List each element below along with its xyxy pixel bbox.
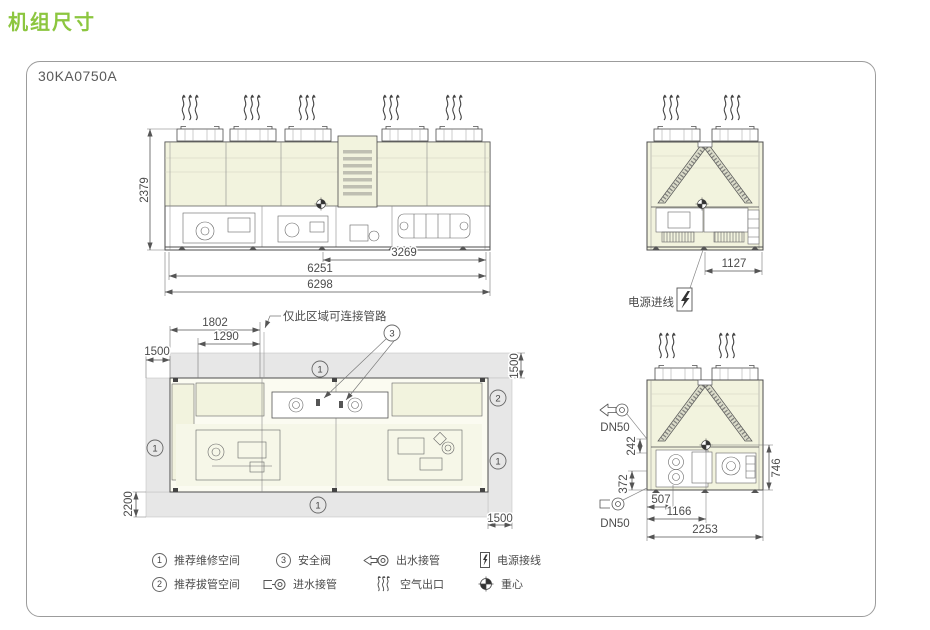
- marker-tube-right: 2: [495, 394, 500, 405]
- dim-746: 746: [771, 458, 783, 477]
- marker-service-bottom: 1: [315, 501, 320, 512]
- legend-item-gravity: 重心: [478, 576, 523, 592]
- air-outlet-icon: [377, 576, 393, 592]
- legend-item-power: 电源接线: [480, 552, 541, 568]
- air-outlet-arrows: [182, 95, 463, 120]
- legend-label-safety-valve: 安全阀: [298, 552, 331, 568]
- power-inlet-callout: 电源进线: [628, 250, 703, 311]
- marker-2-icon: 2: [152, 577, 167, 592]
- dim-1802: 1802: [202, 317, 228, 329]
- dim-clearance-bottom: 2200: [123, 491, 135, 517]
- marker-service-left: 1: [152, 444, 157, 455]
- legend-item-air-outlet: 空气出口: [377, 576, 444, 592]
- water-inlet-icon: [263, 577, 286, 592]
- legend-label-power: 电源接线: [497, 552, 541, 568]
- fan-decks: [177, 127, 482, 142]
- dim-partial-width: 3269: [391, 247, 417, 259]
- page: { "page": { "title": "机组尺寸", "model": "3…: [0, 0, 930, 630]
- dim-clearance-left: 1500: [144, 346, 170, 358]
- technical-drawing: 2379 3269 6251 6298 1127: [0, 0, 930, 630]
- legend-label-service-space: 推荐维修空间: [174, 552, 240, 568]
- dim-372: 372: [618, 474, 630, 493]
- dim-inner-width: 6251: [307, 263, 333, 275]
- legend-item-service-space: 1 推荐维修空间: [152, 552, 240, 568]
- end-view-bottom: DN50 DN50 242 372 746 507 1166 2253: [600, 333, 783, 541]
- front-elevation-view: 2379 3269 6251 6298: [139, 95, 490, 296]
- marker-3-icon: 3: [276, 553, 291, 568]
- legend-item-water-inlet: 进水接管: [263, 576, 337, 592]
- marker-1-icon: 1: [152, 553, 167, 568]
- end-top-dimension: 1127: [705, 252, 762, 275]
- center-louvre-tower: [338, 136, 377, 207]
- inlet-size-label: DN50: [600, 518, 629, 530]
- power-wiring-icon: [480, 552, 490, 568]
- dim-height: 2379: [139, 177, 151, 203]
- outlet-size-label: DN50: [600, 422, 629, 434]
- power-inlet-label: 电源进线: [628, 295, 674, 309]
- marker-service-top: 1: [317, 365, 322, 376]
- legend-item-safety-valve: 3 安全阀: [276, 552, 331, 568]
- dim-2253: 2253: [692, 524, 718, 536]
- callout-text: 仅此区域可连接管路: [283, 309, 387, 323]
- legend-item-water-outlet: 出水接管: [363, 552, 440, 568]
- plan-interior: [172, 378, 485, 492]
- dim-overall-width: 6298: [307, 279, 333, 291]
- water-inlet-icon: [600, 500, 610, 508]
- dim-clearance-top: 1500: [509, 353, 521, 379]
- legend-label-air-outlet: 空气出口: [400, 576, 444, 592]
- water-outlet-callout: DN50: [600, 404, 647, 439]
- legend-label-water-inlet: 进水接管: [293, 576, 337, 592]
- marker-service-right: 1: [495, 457, 500, 468]
- marker-safety-valve: 3: [389, 329, 394, 340]
- legend-item-tube-space: 2 推荐拔管空间: [152, 576, 240, 592]
- end-view-top: 1127 电源进线: [628, 95, 763, 311]
- dim-1290: 1290: [213, 331, 239, 343]
- legend-label-tube-space: 推荐拔管空间: [174, 576, 240, 592]
- dim-1166: 1166: [667, 506, 692, 518]
- coil-section: [165, 142, 490, 206]
- center-of-gravity-icon: [478, 576, 494, 592]
- dim-clearance-right: 1500: [487, 513, 513, 525]
- legend-label-water-outlet: 出水接管: [396, 552, 440, 568]
- water-outlet-icon: [600, 404, 616, 416]
- dim-507: 507: [651, 494, 670, 506]
- dim-242: 242: [626, 436, 638, 455]
- plan-view: 1 2 1 1 1 3 仅此区域可连接管路 1802 1290: [123, 309, 525, 529]
- dim-1127: 1127: [722, 258, 747, 270]
- legend-label-gravity: 重心: [501, 576, 523, 592]
- water-outlet-icon: [363, 553, 389, 568]
